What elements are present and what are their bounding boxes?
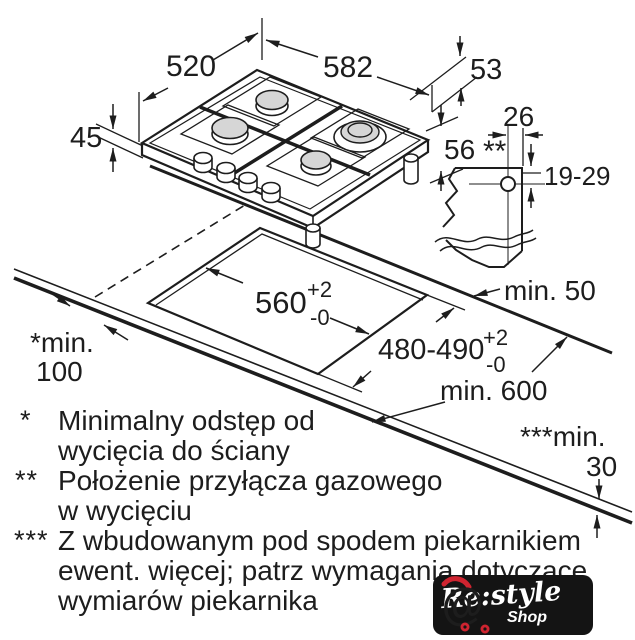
legend-marker-1: * (20, 405, 32, 435)
installation-diagram: 520 582 53 45 56 26 ** 19-29 560 +2 -0 4… (0, 0, 635, 640)
burner-left-cap (212, 118, 248, 139)
dim582-seg-b (377, 77, 429, 95)
dim-480-tol-minus: -0 (486, 352, 506, 377)
min-30-label: ***min. (520, 421, 606, 452)
dim520-seg-a (143, 88, 168, 101)
dim582-seg-a (266, 40, 318, 57)
knob-1-cap (194, 153, 212, 164)
legend-line: Z wbudowanym pod spodem piekarnikiem (58, 526, 581, 556)
burner-back-cap (256, 91, 288, 110)
dim53-stub-a (410, 57, 466, 100)
gas-connection-hole (501, 177, 515, 191)
min-600-label: min. 600 (440, 375, 547, 406)
dim-45-label: 45 (70, 122, 102, 154)
dim480-arrow-b (353, 371, 371, 387)
knob-4-cap (262, 183, 280, 194)
dim-560-tol-minus: -0 (310, 305, 330, 330)
dim56-stub-b (430, 169, 463, 183)
min600-arrow-b (372, 402, 445, 422)
detail-lower-edge (446, 240, 522, 267)
hob-leg-right-top (404, 154, 418, 162)
dim-19-29-label: 19-29 (544, 161, 611, 191)
legend-line: wymiarów piekarnika (58, 586, 318, 616)
dim45-stub-b (96, 136, 143, 158)
dim-56-label: 56 (444, 134, 475, 165)
min100-arrow-right (104, 325, 128, 340)
knob-3-cap (239, 173, 257, 184)
gas-marker-label: ** (483, 135, 507, 168)
dim45-stub-a (96, 124, 143, 146)
dim-53-label: 53 (470, 54, 502, 86)
min-50-label: min. 50 (504, 275, 596, 306)
dim-560-tol-plus: +2 (307, 277, 332, 302)
cart-at-icon: @ (433, 575, 497, 635)
legend-line: Minimalny odstęp od (58, 406, 315, 436)
hob-leg-front-top (306, 224, 320, 232)
burner-front-cap (301, 151, 331, 169)
min-100-value: 100 (36, 356, 83, 387)
cutout-ext-bottom (318, 374, 362, 392)
min50-leader (474, 289, 500, 296)
dim-480-tol-plus: +2 (483, 325, 508, 350)
legend-marker-2: ** (15, 465, 38, 495)
dim480-arrow-a (436, 308, 454, 322)
restyle-shop-logo: Re:style Shop @ (433, 575, 593, 635)
dim-480-490-label: 480-490 (378, 334, 484, 366)
burner-wok-cap (348, 123, 372, 137)
legend-line: wycięcia do ściany (58, 436, 290, 466)
detail-break-curve-a (435, 230, 533, 242)
dim-560-label: 560 (255, 285, 307, 320)
dim520-seg-b (213, 33, 258, 60)
legend-line: Położenie przyłącza gazowego (58, 466, 442, 496)
min-100-label: *min. (30, 327, 94, 358)
dim-26-label: 26 (503, 101, 534, 132)
dim-520-label: 520 (166, 50, 216, 83)
dim56-stub-a (426, 117, 458, 131)
legend-line: w wycięciu (58, 496, 192, 526)
dim-582-label: 582 (323, 51, 373, 84)
cutout-ext-right (427, 295, 465, 310)
knob-2-cap (217, 163, 235, 174)
min600-arrow-a (532, 337, 567, 372)
legend-marker-3: *** (14, 525, 49, 555)
min-30-value: 30 (586, 451, 617, 482)
logo-sub-text: Shop (507, 609, 547, 627)
